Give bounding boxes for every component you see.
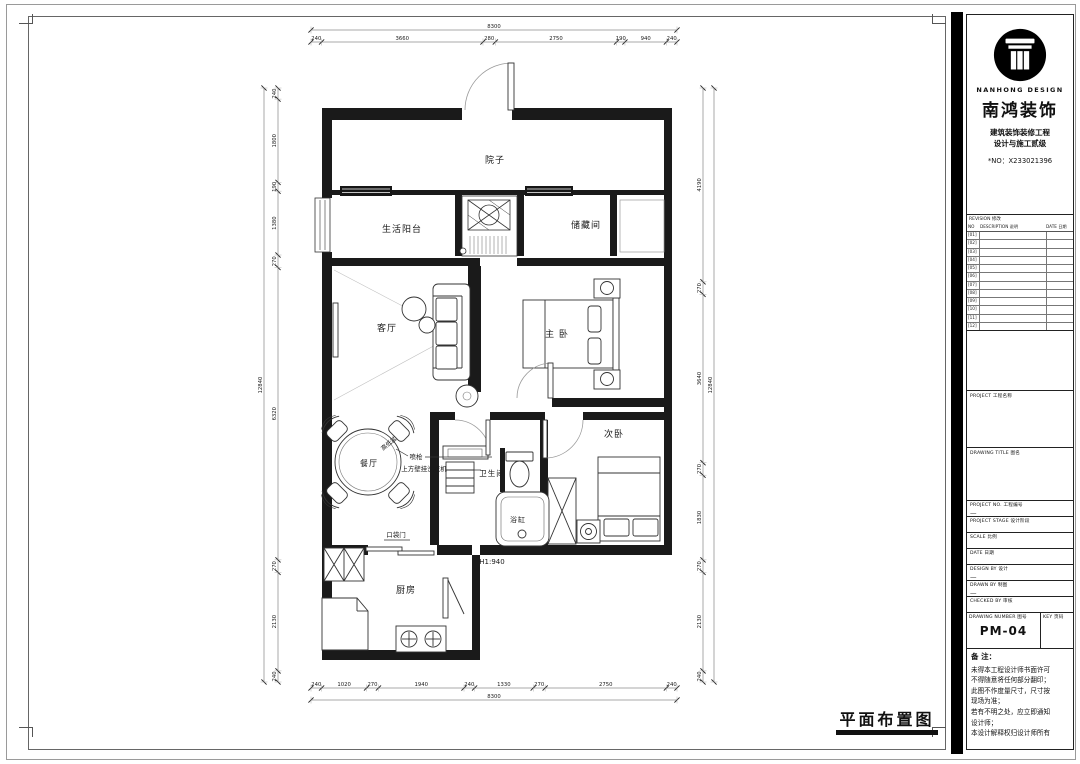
drawing-title: 平面布置图 — [836, 706, 938, 730]
lamp — [601, 373, 614, 386]
field-project-stage: PROJECT STAGE 设计阶段 — [967, 517, 1073, 533]
field-project-no: PROJECT NO. 工程编号 — — [967, 501, 1073, 517]
annotation-wall-washer: 上方壁挂洗衣机 — [401, 464, 447, 473]
stove — [396, 626, 446, 652]
svg-text:280: 280 — [484, 36, 495, 42]
key-label: KEY 页码 — [1043, 614, 1071, 620]
brand-section: NANHONG DESIGN 南鸿装饰 建筑装饰装修工程 设计与施工贰级 *NO… — [967, 15, 1073, 215]
room-label-storage: 储藏间 — [571, 219, 601, 231]
second-door-leaf — [543, 420, 547, 458]
corner-mark-top-right — [932, 14, 946, 24]
washing-machine — [577, 520, 600, 543]
basin-unit — [446, 462, 474, 493]
company-name-cn: 南鸿装饰 — [967, 96, 1073, 121]
annotation-wall-height: H1:940 — [479, 558, 504, 566]
revision-row: [12] — [967, 323, 1073, 330]
note-line: 若有不明之处，应立即通知 — [971, 707, 1069, 718]
svg-text:270: 270 — [272, 560, 278, 571]
col-no: NO — [968, 224, 980, 231]
cert-number: *NO：X233021396 — [967, 155, 1073, 165]
room-label-second-bedroom: 次卧 — [604, 428, 624, 440]
svg-text:240: 240 — [272, 671, 278, 682]
drawing-number-section: DRAWING NUMBER 图号 PM-04 KEY 页码 — [967, 613, 1073, 649]
revision-row: [04] — [967, 257, 1073, 265]
corner-mark-top-left — [19, 14, 33, 24]
second-door-arc — [545, 420, 583, 458]
kitchen-door — [443, 578, 464, 618]
svg-text:2750: 2750 — [549, 36, 563, 42]
field-project: PROJECT 工程名称 — [967, 391, 1073, 448]
toilet — [506, 452, 533, 487]
drawing-number-label: DRAWING NUMBER 图号 — [969, 614, 1038, 620]
svg-text:240: 240 — [311, 682, 322, 688]
svg-text:240: 240 — [667, 36, 678, 42]
seal-box — [967, 331, 1073, 391]
room-label-living-room: 客厅 — [377, 322, 397, 334]
svg-text:4190: 4190 — [697, 178, 703, 192]
floor-plan-svg: 8300240366028027501909402402401020270194… — [250, 10, 740, 720]
revision-row: [07] — [967, 282, 1073, 290]
field-checked-by: CHECKED BY 审核 — [967, 597, 1073, 613]
col-description: DESCRIPTION 说明 — [980, 224, 1046, 231]
wardrobe — [548, 478, 576, 544]
svg-text:12840: 12840 — [708, 376, 714, 393]
svg-text:1330: 1330 — [497, 682, 511, 688]
bath-door-leaf — [486, 420, 490, 455]
svg-text:940: 940 — [641, 36, 652, 42]
floor-lamp — [419, 317, 435, 333]
master-door-leaf — [548, 363, 553, 398]
note-line: 本设计解释权归设计师所有 — [971, 728, 1069, 739]
field-drawing-title: DRAWING TITLE 图名 — [967, 448, 1073, 501]
lamp — [601, 282, 614, 295]
drawing-title-underline — [836, 730, 938, 735]
note-line: 现场为准； — [971, 696, 1069, 707]
corner-mark-bottom-left — [19, 727, 33, 737]
svg-text:240: 240 — [464, 682, 475, 688]
revision-row: [02] — [967, 240, 1073, 248]
revision-row: [09] — [967, 298, 1073, 306]
svg-text:190: 190 — [272, 181, 278, 192]
field-design-by: DESIGN BY 设计 — — [967, 565, 1073, 581]
svg-text:3640: 3640 — [697, 371, 703, 385]
svg-text:270: 270 — [697, 282, 703, 293]
notes-title: 备 注： — [971, 652, 1069, 663]
room-label-dining-room: 餐厅 — [360, 459, 378, 468]
revision-row: [03] — [967, 249, 1073, 257]
page-canvas: 8300240366028027501909402402401020270194… — [0, 0, 1080, 764]
svg-text:270: 270 — [697, 463, 703, 474]
master-bed — [523, 279, 620, 389]
svg-text:2750: 2750 — [599, 682, 613, 688]
svg-text:240: 240 — [667, 682, 678, 688]
svg-text:1940: 1940 — [414, 682, 428, 688]
svg-text:240: 240 — [697, 671, 703, 682]
drawing-number-value: PM-04 — [969, 624, 1038, 638]
svg-text:6320: 6320 — [272, 406, 278, 420]
side-table — [402, 297, 426, 321]
svg-text:1020: 1020 — [337, 682, 351, 688]
utility-shaft — [460, 196, 664, 256]
titleblock-black-bar — [951, 12, 963, 754]
revision-table: REVISION 修改 NO DESCRIPTION 说明 DATE 日期 [0… — [967, 215, 1073, 331]
revision-row: [05] — [967, 265, 1073, 273]
note-line: 此图不作度量尺寸，尺寸按 — [971, 686, 1069, 697]
entry-door-leaf — [508, 63, 514, 110]
cert-line-2: 设计与施工贰级 — [967, 139, 1073, 150]
revision-row: [06] — [967, 273, 1073, 281]
revision-row: [08] — [967, 290, 1073, 298]
svg-text:270: 270 — [272, 256, 278, 267]
svg-text:8300: 8300 — [487, 694, 501, 700]
titleblock: NANHONG DESIGN 南鸿装饰 建筑装饰装修工程 设计与施工贰级 *NO… — [966, 14, 1074, 750]
svg-text:1380: 1380 — [272, 216, 278, 230]
room-label-kitchen: 厨房 — [396, 584, 416, 596]
svg-text:1830: 1830 — [697, 510, 703, 524]
cert-line-1: 建筑装饰装修工程 — [967, 128, 1073, 139]
note-line: 不得随意将任何部分翻印； — [971, 675, 1069, 686]
svg-text:3660: 3660 — [396, 36, 410, 42]
room-label-courtyard: 院子 — [485, 154, 505, 166]
note-line: 未得本工程设计师书面许可 — [971, 665, 1069, 676]
svg-text:270: 270 — [534, 682, 545, 688]
window-symbols — [315, 186, 573, 252]
room-label-bathtub: 浴缸 — [510, 515, 526, 524]
svg-text:190: 190 — [616, 36, 627, 42]
corner-cabinet — [322, 598, 368, 650]
room-label-master-bedroom: 主 卧 — [545, 328, 569, 340]
second-bed — [598, 457, 660, 541]
company-logo — [992, 27, 1048, 83]
entry-door-arc — [465, 63, 512, 110]
revision-title: REVISION 修改 — [967, 215, 1073, 224]
svg-text:270: 270 — [697, 560, 703, 571]
field-date: DATE 日期 — [967, 549, 1073, 565]
svg-text:1800: 1800 — [272, 133, 278, 147]
sofa — [433, 284, 470, 380]
note-line: 设计师； — [971, 718, 1069, 729]
room-label-service-balcony: 生活阳台 — [382, 223, 422, 235]
svg-text:8300: 8300 — [487, 24, 501, 30]
svg-text:12840: 12840 — [258, 376, 264, 393]
hall-basin — [456, 385, 478, 407]
revision-row: [11] — [967, 315, 1073, 323]
room-label-bathroom: 卫生间 — [479, 468, 505, 478]
svg-text:2130: 2130 — [272, 614, 278, 628]
field-scale: SCALE 比例 — [967, 533, 1073, 549]
col-date: DATE 日期 — [1046, 224, 1072, 231]
svg-text:270: 270 — [367, 682, 378, 688]
ac-ledge — [620, 200, 664, 252]
annotation-sprayer: 喷枪 — [410, 452, 424, 461]
company-name-en: NANHONG DESIGN — [967, 86, 1073, 94]
annotation-pocket-door: 口袋门 — [386, 530, 406, 539]
svg-text:240: 240 — [272, 88, 278, 99]
svg-text:240: 240 — [311, 36, 322, 42]
revision-row: [10] — [967, 306, 1073, 314]
pocket-door-panels — [366, 547, 434, 555]
fridge — [324, 548, 364, 581]
svg-text:2130: 2130 — [697, 614, 703, 628]
tv — [333, 303, 338, 357]
revision-row: [01] — [967, 232, 1073, 240]
revision-columns: NO DESCRIPTION 说明 DATE 日期 — [967, 224, 1073, 232]
field-drawn-by: DRAWN BY 制图 — — [967, 581, 1073, 597]
notes-section: 备 注： 未得本工程设计师书面许可 不得随意将任何部分翻印； 此图不作度量尺寸，… — [967, 649, 1073, 749]
